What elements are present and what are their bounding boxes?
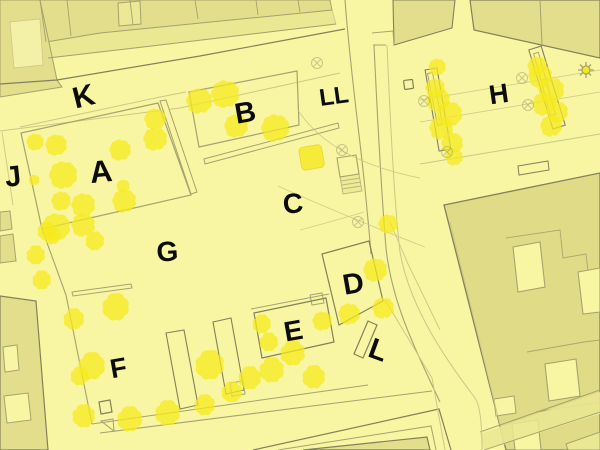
svg-text:A: A — [88, 153, 114, 190]
svg-text:C: C — [281, 187, 304, 220]
svg-text:J: J — [3, 160, 22, 194]
svg-text:LL: LL — [318, 81, 351, 112]
svg-text:H: H — [487, 78, 510, 110]
svg-text:G: G — [155, 235, 179, 267]
